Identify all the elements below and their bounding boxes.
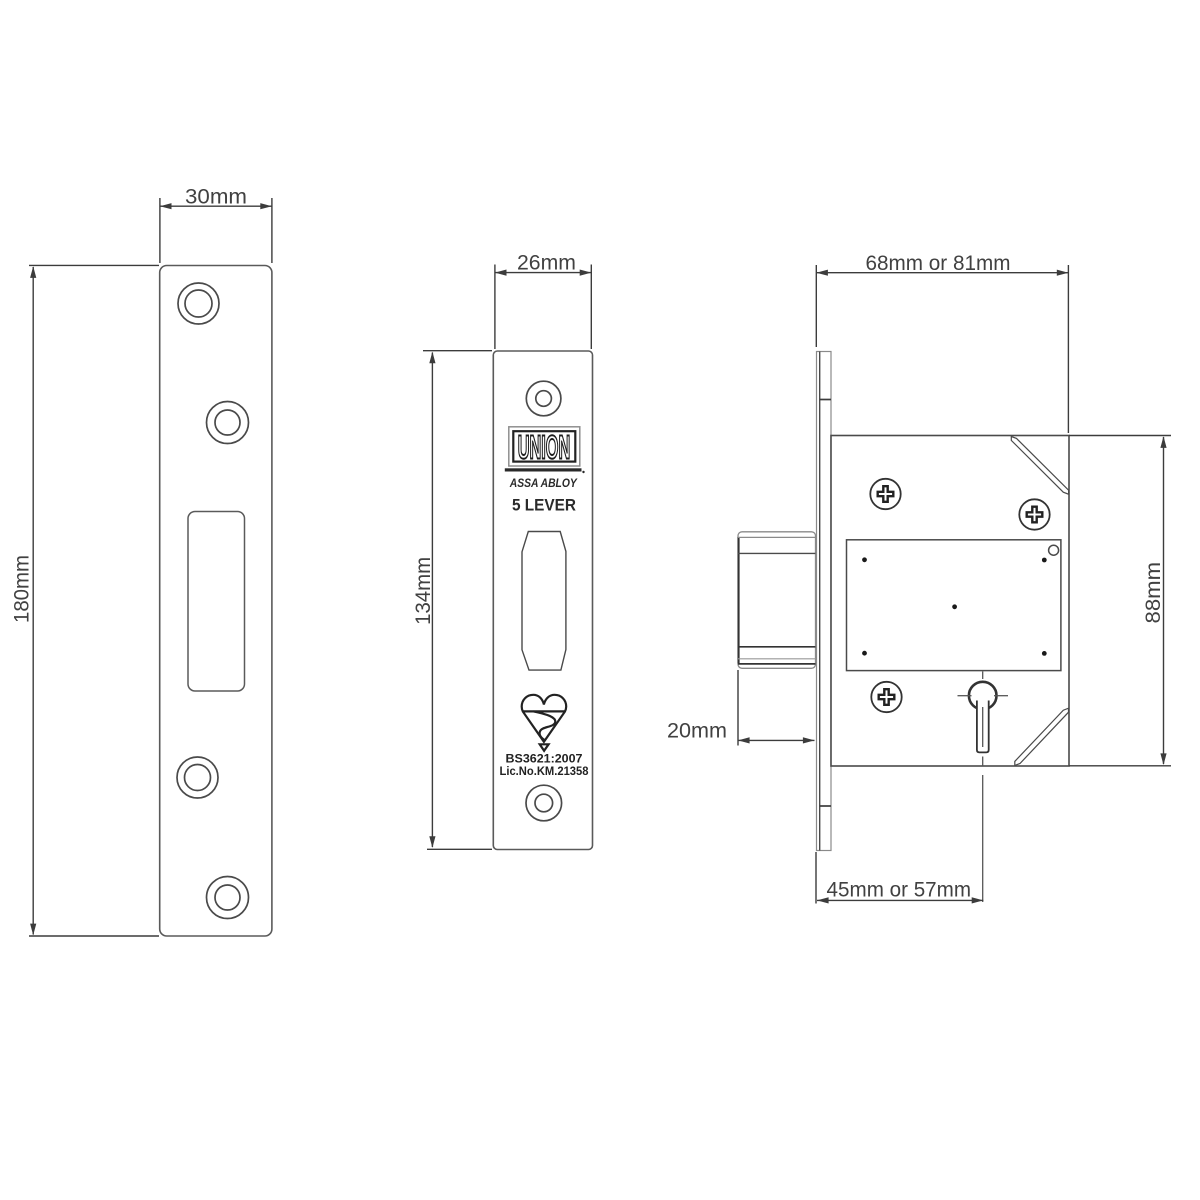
svg-text:Lic.No.KM.21358: Lic.No.KM.21358 <box>500 764 589 778</box>
svg-text:UNION: UNION <box>518 428 571 465</box>
svg-text:20mm: 20mm <box>667 720 727 743</box>
svg-text:26mm: 26mm <box>517 252 576 275</box>
svg-text:5 LEVER: 5 LEVER <box>512 496 576 515</box>
svg-text:45mm or 57mm: 45mm or 57mm <box>827 878 972 901</box>
svg-text:68mm or 81mm: 68mm or 81mm <box>866 252 1011 275</box>
svg-text:134mm: 134mm <box>412 557 435 625</box>
svg-text:88mm: 88mm <box>1142 562 1165 624</box>
svg-text:180mm: 180mm <box>11 555 34 623</box>
svg-text:30mm: 30mm <box>185 185 247 208</box>
svg-text:ASSA ABLOY: ASSA ABLOY <box>509 478 578 490</box>
